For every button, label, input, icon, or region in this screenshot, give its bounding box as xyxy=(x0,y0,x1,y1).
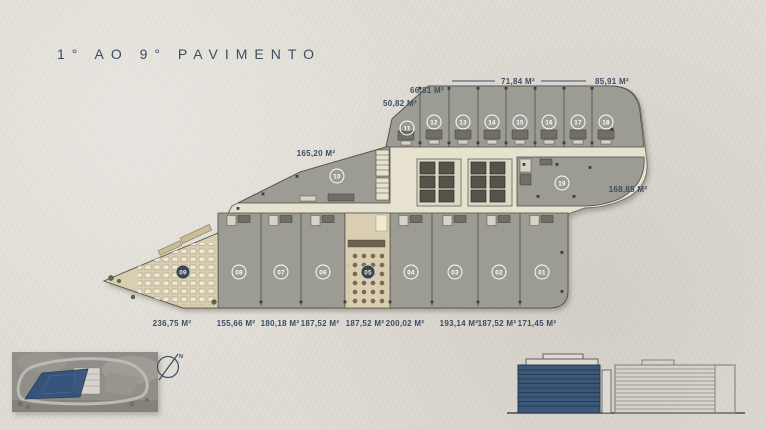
building-elevation-other xyxy=(615,360,735,413)
svg-text:14: 14 xyxy=(488,119,496,126)
svg-text:07: 07 xyxy=(277,269,285,276)
dim-label-180-18: 180,18 M² xyxy=(261,319,300,328)
svg-text:05: 05 xyxy=(364,269,372,276)
svg-text:03: 03 xyxy=(451,269,459,276)
svg-text:02: 02 xyxy=(495,269,503,276)
svg-text:01: 01 xyxy=(538,269,546,276)
svg-text:12: 12 xyxy=(430,119,438,126)
building-elevations xyxy=(505,350,750,418)
unit-badge-05: 05 xyxy=(361,265,375,279)
building-elevation-current xyxy=(518,354,611,413)
north-label: N xyxy=(179,354,183,360)
svg-text:08: 08 xyxy=(235,269,243,276)
unit-09-terrace xyxy=(104,225,218,308)
dim-label-200-02: 200,02 M² xyxy=(386,319,425,328)
svg-text:16: 16 xyxy=(545,119,553,126)
svg-text:18: 18 xyxy=(602,119,610,126)
dim-label-71-84: 71,84 M² xyxy=(501,77,535,86)
dim-label-171-45: 171,45 M² xyxy=(518,319,557,328)
svg-text:09: 09 xyxy=(179,269,187,276)
stairs xyxy=(376,150,389,200)
dim-label-187-52-c: 187,52 M² xyxy=(478,319,517,328)
dim-label-187-52-b: 187,52 M² xyxy=(346,319,385,328)
dim-label-85-91: 85,91 M² xyxy=(595,77,629,86)
dim-label-165-20: 165,20 M² xyxy=(297,149,336,158)
dim-label-193-14: 193,14 M² xyxy=(440,319,479,328)
dim-label-50-82: 50,82 M² xyxy=(383,99,417,108)
svg-text:17: 17 xyxy=(574,119,582,126)
bottom-units-band xyxy=(218,213,568,308)
svg-text:15: 15 xyxy=(516,119,524,126)
svg-text:19: 19 xyxy=(558,180,566,187)
brochure-page: 1° AO 9° PAVIMENTO xyxy=(0,0,766,430)
unit-05-cafe xyxy=(345,213,390,308)
svg-text:13: 13 xyxy=(459,119,467,126)
dim-label-155-66: 155,66 M² xyxy=(217,319,256,328)
dim-label-236-75: 236,75 M² xyxy=(153,319,192,328)
dim-label-168-85: 168,85 M² xyxy=(609,185,648,194)
dim-label-66-81: 66,81 M² xyxy=(410,86,444,95)
svg-text:06: 06 xyxy=(319,269,327,276)
svg-text:10: 10 xyxy=(333,173,341,180)
dim-label-187-52-a: 187,52 M² xyxy=(301,319,340,328)
unit-badge-09: 09 xyxy=(176,265,190,279)
svg-text:04: 04 xyxy=(407,269,415,276)
compass-icon: N xyxy=(150,350,190,390)
svg-text:11: 11 xyxy=(403,125,410,132)
site-aerial-photo xyxy=(12,352,158,412)
